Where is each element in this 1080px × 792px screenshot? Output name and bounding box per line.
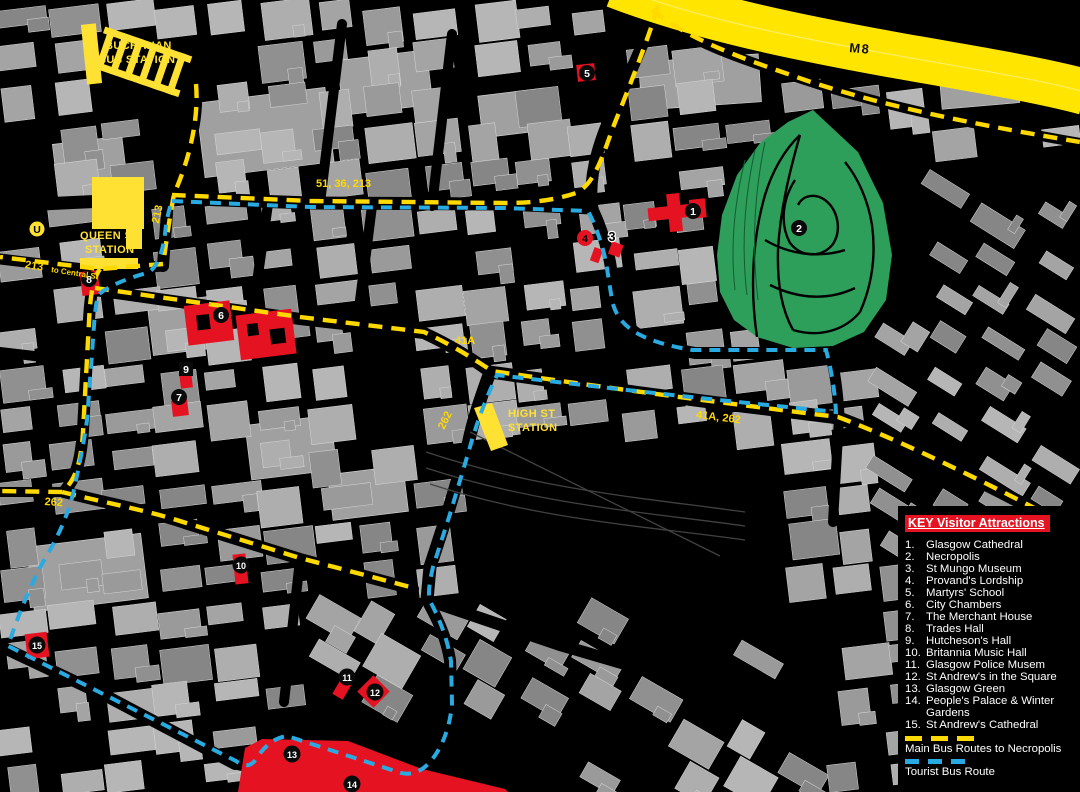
poi-marker-8: 8 bbox=[81, 271, 97, 287]
svg-text:7: 7 bbox=[176, 392, 182, 404]
main-bus-route-swatch bbox=[905, 736, 1080, 741]
attraction-item: 14. People's Palace & Winter Gardens bbox=[905, 696, 1080, 720]
svg-text:4: 4 bbox=[582, 233, 588, 245]
svg-text:9: 9 bbox=[183, 364, 189, 376]
attraction-number: 12. bbox=[905, 672, 926, 684]
queen-st-station-building bbox=[92, 177, 144, 229]
blue-dash-icon bbox=[928, 759, 942, 764]
city-chambers-courtyard-2 bbox=[247, 323, 259, 336]
map-canvas: 123456789101112131415U M8BUCHANANBUS STA… bbox=[0, 0, 1080, 792]
svg-text:10: 10 bbox=[236, 561, 246, 571]
attraction-number: 9. bbox=[905, 636, 926, 648]
poi-marker-5: 5 bbox=[579, 65, 595, 81]
svg-text:1: 1 bbox=[690, 206, 696, 218]
poi-marker-2: 2 bbox=[791, 220, 807, 236]
blue-dash-icon bbox=[905, 759, 919, 764]
tourist-route-label: Tourist Bus Route bbox=[905, 766, 1080, 778]
attraction-item: 11. Glasgow Police Musem bbox=[905, 660, 1080, 672]
yellow-dash-icon bbox=[957, 736, 974, 741]
main-bus-routes-label: Main Bus Routes to Necropolis bbox=[905, 743, 1080, 755]
attraction-item: 7. The Merchant House bbox=[905, 612, 1080, 624]
attraction-label: St Andrew's Cathedral bbox=[926, 720, 1080, 732]
svg-text:8: 8 bbox=[86, 274, 92, 286]
attraction-number: 8. bbox=[905, 624, 926, 636]
poi-marker-9: 9 bbox=[179, 362, 193, 376]
attraction-label: Hutcheson's Hall bbox=[926, 636, 1080, 648]
svg-text:3: 3 bbox=[609, 230, 616, 244]
city-chambers-courtyard bbox=[196, 314, 211, 330]
queen-st-station-annex bbox=[126, 229, 142, 249]
svg-text:11: 11 bbox=[342, 673, 352, 683]
poi-marker-7: 7 bbox=[171, 389, 187, 405]
poi-marker-3: 3 bbox=[609, 230, 616, 244]
poi-marker-12: 12 bbox=[367, 684, 384, 701]
poi-marker-13: 13 bbox=[284, 746, 301, 763]
attraction-number: 11. bbox=[905, 660, 926, 672]
attraction-label: The Merchant House bbox=[926, 612, 1080, 624]
attraction-item: 13. Glasgow Green bbox=[905, 684, 1080, 696]
attraction-number: 13. bbox=[905, 684, 926, 696]
poi-marker-1: 1 bbox=[685, 203, 701, 219]
underground-icon: U bbox=[30, 222, 45, 237]
map-legend: KEY Visitor Attractions 1. Glasgow Cathe… bbox=[898, 506, 1080, 792]
svg-text:12: 12 bbox=[370, 688, 380, 698]
svg-text:14: 14 bbox=[347, 780, 357, 790]
attraction-label: St Andrew's in the Square bbox=[926, 672, 1080, 684]
attraction-label: Glasgow Green bbox=[926, 684, 1080, 696]
attraction-label: Britannia Music Hall bbox=[926, 648, 1080, 660]
poi-marker-14: 14 bbox=[344, 776, 361, 792]
attractions-list: 1. Glasgow Cathedral 2. Necropolis 3. St… bbox=[905, 540, 1080, 732]
attraction-item: 8. Trades Hall bbox=[905, 624, 1080, 636]
svg-text:15: 15 bbox=[32, 641, 42, 651]
yellow-dash-icon bbox=[931, 736, 948, 741]
blue-dash-icon bbox=[951, 759, 965, 764]
legend-title: KEY Visitor Attractions bbox=[905, 515, 1050, 532]
attraction-number: 10. bbox=[905, 648, 926, 660]
attraction-number: 15. bbox=[905, 720, 926, 732]
poi-marker-15: 15 bbox=[29, 637, 46, 654]
attraction-item: 9. Hutcheson's Hall bbox=[905, 636, 1080, 648]
attraction-number: 7. bbox=[905, 612, 926, 624]
attraction-number: 14. bbox=[905, 696, 926, 720]
attraction-label: People's Palace & Winter Gardens bbox=[926, 696, 1080, 720]
svg-text:6: 6 bbox=[218, 310, 224, 322]
yellow-dash-icon bbox=[905, 736, 922, 741]
svg-text:2: 2 bbox=[796, 223, 802, 235]
svg-text:13: 13 bbox=[287, 750, 297, 760]
poi-marker-6: 6 bbox=[213, 307, 229, 323]
attraction-item: 10. Britannia Music Hall bbox=[905, 648, 1080, 660]
svg-text:5: 5 bbox=[584, 68, 590, 80]
poi-marker-10: 10 bbox=[233, 557, 250, 574]
svg-text:U: U bbox=[33, 224, 41, 236]
attraction-item: 15. St Andrew's Cathedral bbox=[905, 720, 1080, 732]
attraction-label: Trades Hall bbox=[926, 624, 1080, 636]
attraction-item: 12. St Andrew's in the Square bbox=[905, 672, 1080, 684]
tourist-route-swatch bbox=[905, 759, 1080, 764]
poi-marker-4: 4 bbox=[577, 230, 593, 246]
poi-marker-11: 11 bbox=[339, 669, 356, 686]
attraction-label: Glasgow Police Musem bbox=[926, 660, 1080, 672]
city-chambers-courtyard-3 bbox=[269, 328, 286, 345]
